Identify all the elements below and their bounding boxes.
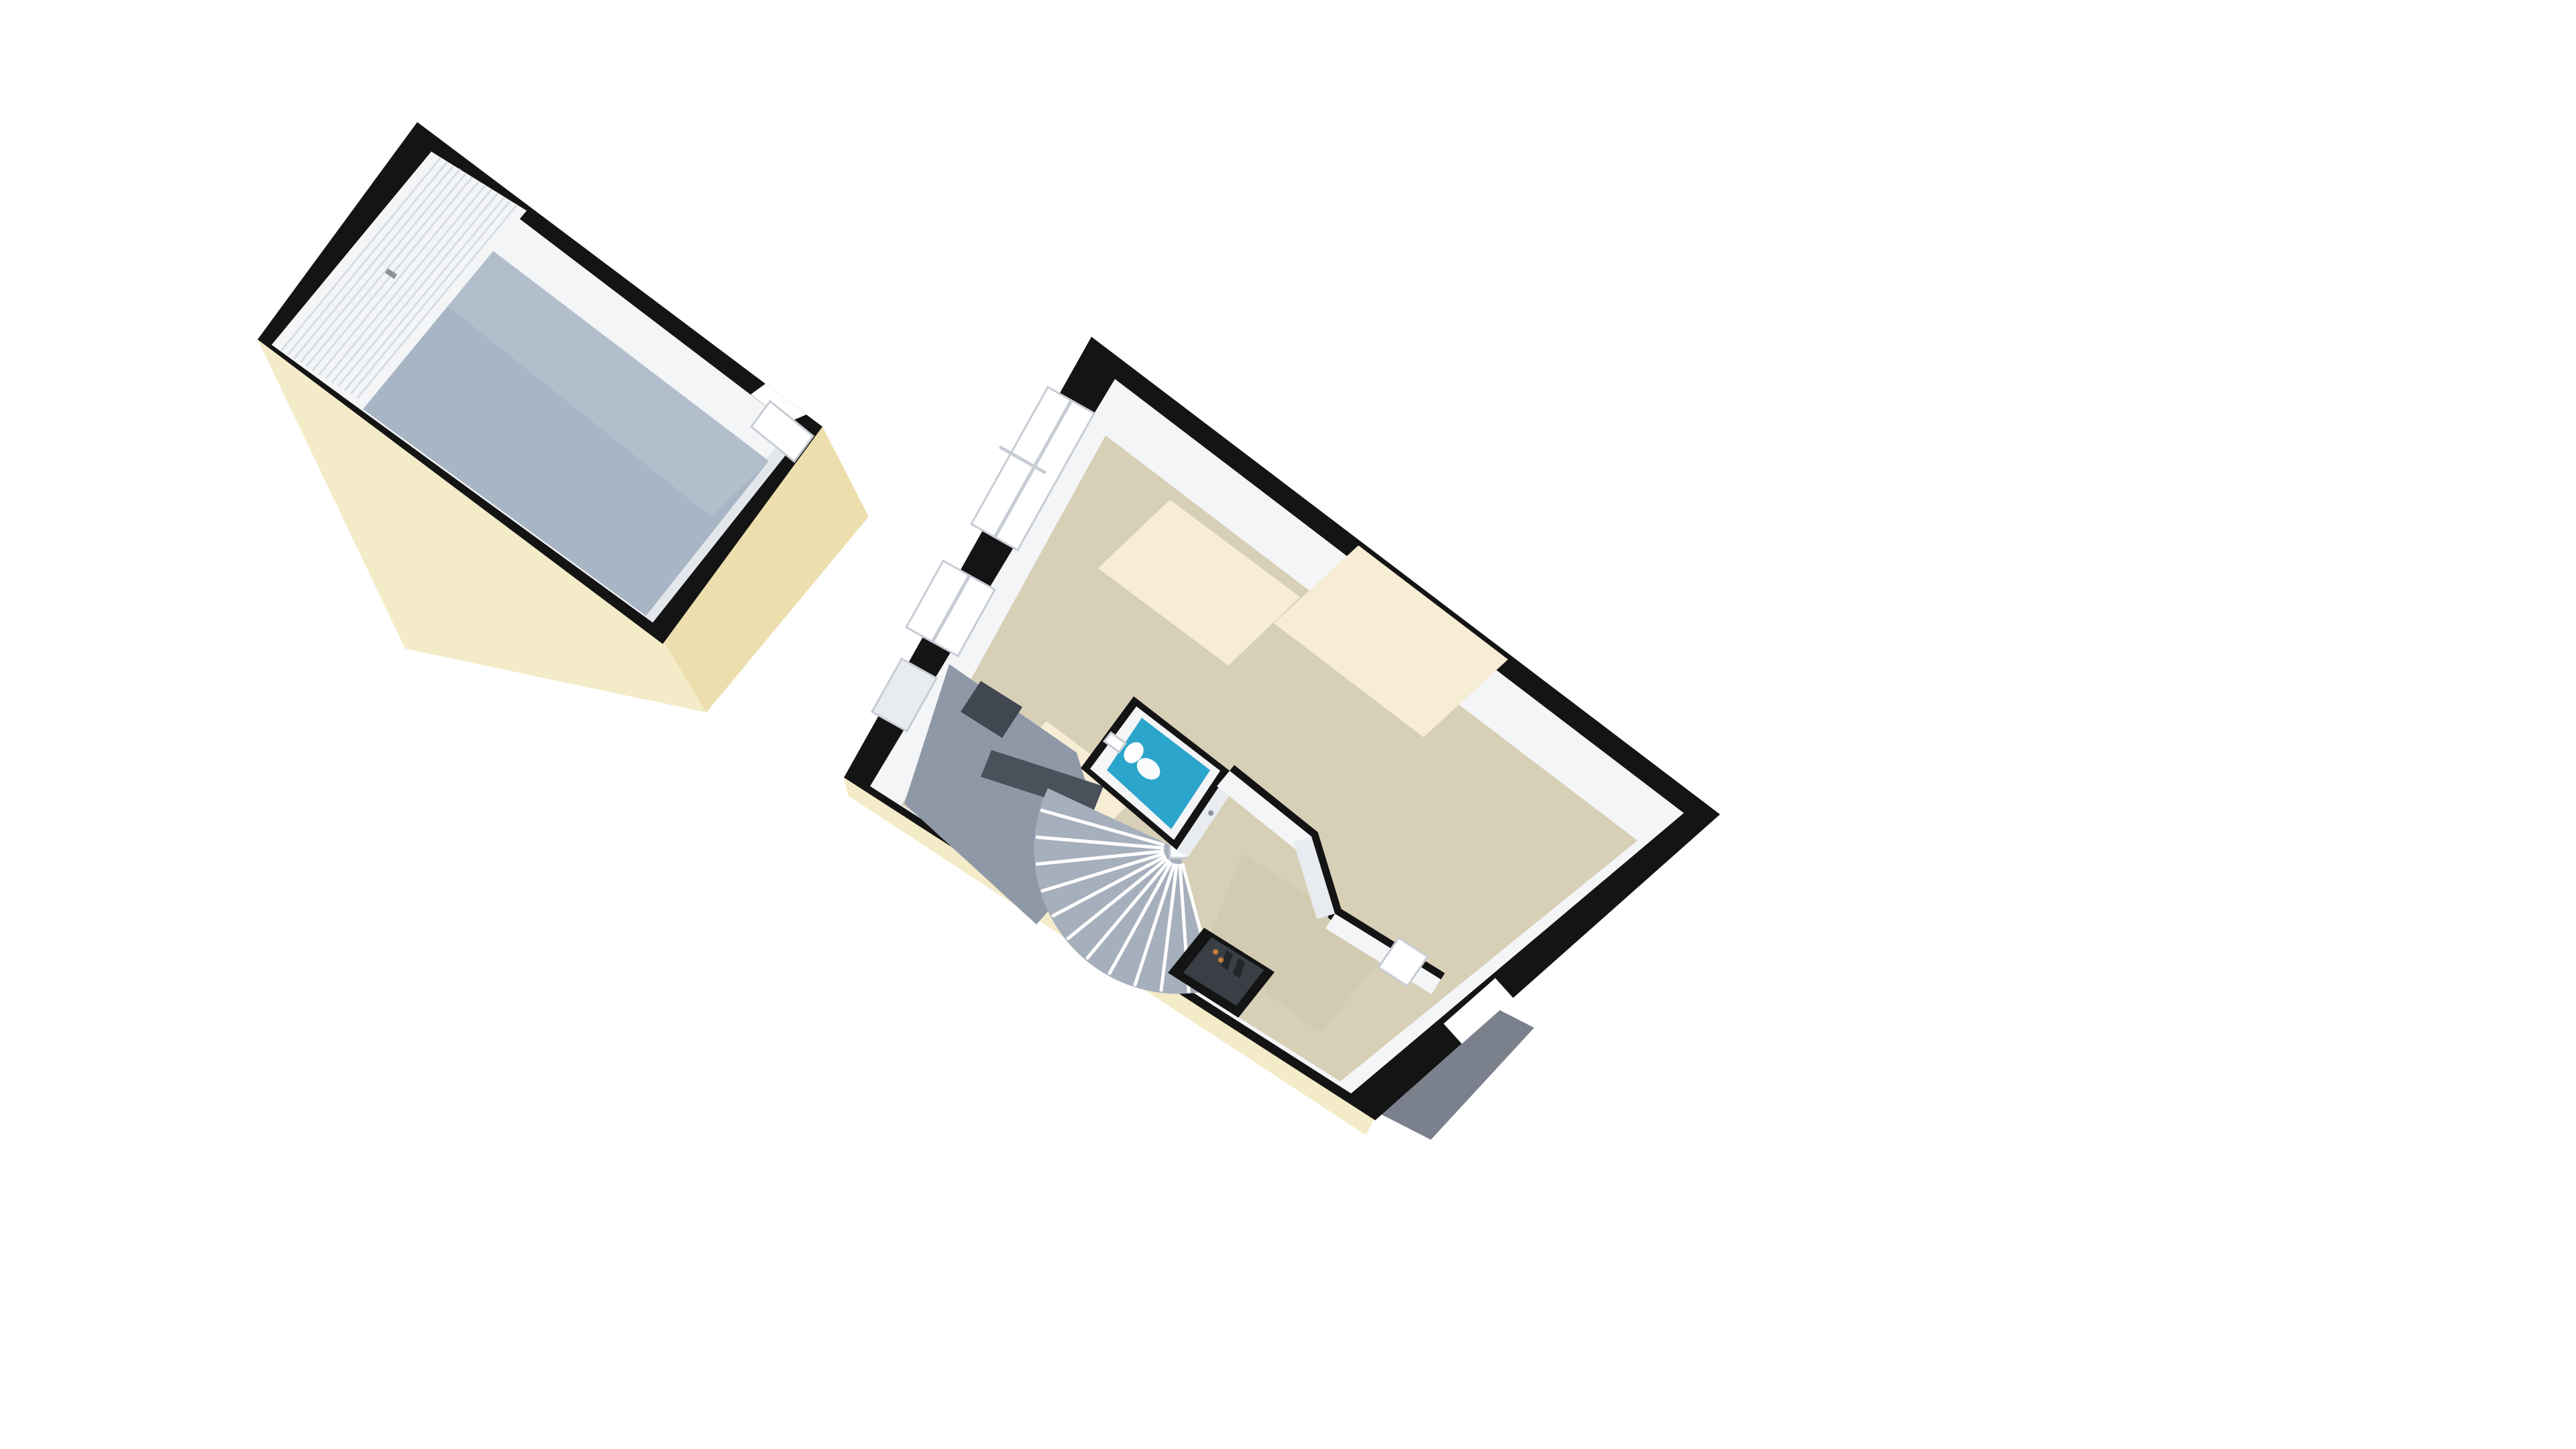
- floorplan-canvas: [0, 0, 2576, 1449]
- closet-item-dot-1: [1213, 949, 1218, 955]
- wc-door-handle: [1208, 810, 1214, 816]
- closet-item-dot-2: [1218, 957, 1224, 963]
